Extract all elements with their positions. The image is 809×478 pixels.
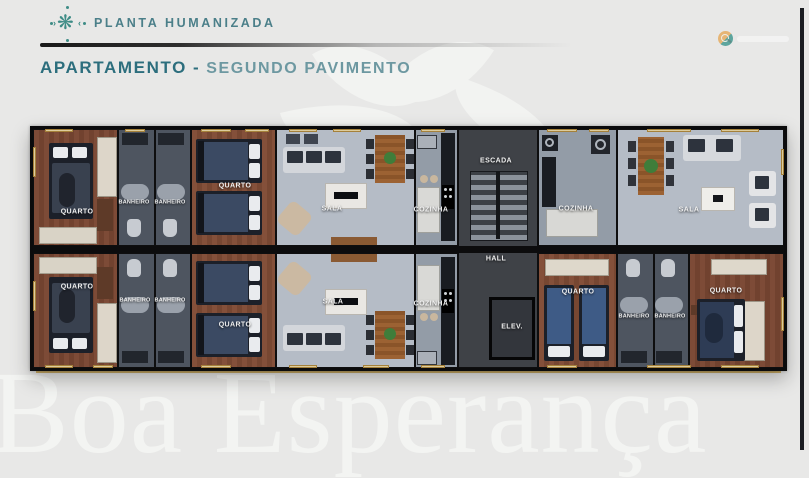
sink [122,133,148,145]
window-marker [647,365,691,368]
stairs-rail [496,171,500,239]
wardrobe [743,301,765,361]
wall-art [304,134,318,144]
bed [544,285,574,361]
stool [430,175,438,183]
window-marker [333,129,361,132]
brand-watermark [718,31,789,46]
kitchen-island [546,209,598,237]
bathtub [620,297,648,313]
room-label: SALA [322,206,343,213]
counter [542,157,556,207]
chair [366,154,374,164]
toilet [127,259,141,277]
chair [366,169,374,179]
logo-icon: ❋ › ‹ [50,6,86,44]
dresser [97,267,113,299]
room-label: BANHEIRO [120,298,151,304]
room-label: SALA [323,299,344,306]
window-marker [45,365,73,368]
room-label: COZINHA [559,206,594,213]
kitchen-sink [417,135,437,149]
sofa [683,135,741,161]
bed [579,285,609,361]
window-marker [289,365,317,368]
window-marker [201,365,231,368]
dining-table [375,135,405,183]
window-marker [45,129,73,132]
chair [366,345,374,355]
window-marker [93,365,113,368]
room-label: QUARTO [219,322,252,329]
armchair [749,171,776,196]
sink [122,351,148,363]
window-marker [547,365,577,368]
cabinet [39,257,97,274]
window-marker [289,129,317,132]
dining-table [638,137,664,195]
room-label: BANHEIRO [119,200,150,206]
toilet [626,259,640,277]
dresser [97,199,113,231]
room-label: QUARTO [219,183,252,190]
room-label: QUARTO [710,288,743,295]
cabinet [39,227,97,244]
chair [406,345,414,355]
chair [628,141,636,152]
chair [666,158,674,169]
right-edge-line [800,8,804,450]
bathtub [121,184,149,200]
wardrobe [97,303,117,363]
header-divider [40,43,600,47]
bathtub [157,184,185,200]
title-pavimento: SEGUNDO PAVIMENTO [206,60,411,77]
window-marker [781,149,784,175]
room-label: SALA [679,207,700,214]
stool [430,313,438,321]
shelf [711,259,767,275]
toilet [661,259,675,277]
wardrobe [545,259,609,276]
stool [420,313,428,321]
room-label: COZINHA [414,207,449,214]
kitchen-sink [417,351,437,365]
tv-panel [331,254,377,262]
window-marker [421,129,445,132]
sofa [283,325,345,351]
room-label: COZINHA [414,301,449,308]
sink [158,351,184,363]
chair [366,315,374,325]
chair [406,154,414,164]
room-label: BANHEIRO [619,314,650,320]
room-label: QUARTO [61,284,94,291]
chair [628,158,636,169]
bathtub [655,297,683,313]
window-marker [421,365,445,368]
sink [656,351,682,363]
bed [697,299,745,361]
room-label: QUARTO [562,289,595,296]
magnifier-icon [718,31,733,46]
stove [442,185,454,209]
window-marker [721,365,759,368]
room-label: BANHEIRO [155,298,186,304]
window-marker [589,129,609,132]
floor-plan: QUARTO BANHEIRO BANHEIRO QUARTO SALA COZ… [30,126,787,371]
bed [196,313,262,357]
washer [542,135,558,151]
plan-gold-sill [36,371,781,373]
tv-panel [331,237,377,245]
sink [621,351,647,363]
title-separator: - [187,58,206,77]
sofa [283,147,345,173]
page-title: APARTAMENTO-SEGUNDO PAVIMENTO [40,58,411,78]
wardrobe [97,137,117,197]
chair [406,330,414,340]
dining-table [375,311,405,359]
room-label: HALL [486,256,506,263]
title-apartamento: APARTAMENTO [40,58,187,77]
chair [366,139,374,149]
window-marker [33,281,36,311]
chair [666,175,674,186]
brand-watermark-text [737,36,789,42]
chair [666,141,674,152]
room-label: ESCADA [480,158,512,165]
toilet [163,219,177,237]
window-marker [647,129,691,132]
window-marker [547,129,577,132]
stool [420,175,428,183]
window-marker [245,129,269,132]
window-marker [781,297,784,331]
chair [406,169,414,179]
toilet [127,219,141,237]
sink [158,133,184,145]
chair [366,330,374,340]
toilet [163,259,177,277]
bed [196,139,262,183]
room-label: BANHEIRO [655,314,686,320]
chair [406,139,414,149]
wall-art [286,134,300,144]
window-marker [33,147,36,177]
chair [406,315,414,325]
logo-label: PLANTA HUMANIZADA [94,16,276,30]
window-marker [363,365,389,368]
armchair [749,203,776,228]
chair [628,175,636,186]
room-label: ELEV. [501,324,523,331]
room-label: QUARTO [61,209,94,216]
window-marker [125,129,145,132]
washer [591,135,610,154]
coffee-table [701,187,735,211]
bed [196,191,262,235]
bed [196,261,262,305]
window-marker [721,129,759,132]
middle-wall [33,246,784,253]
window-marker [201,129,231,132]
room-label: BANHEIRO [155,200,186,206]
